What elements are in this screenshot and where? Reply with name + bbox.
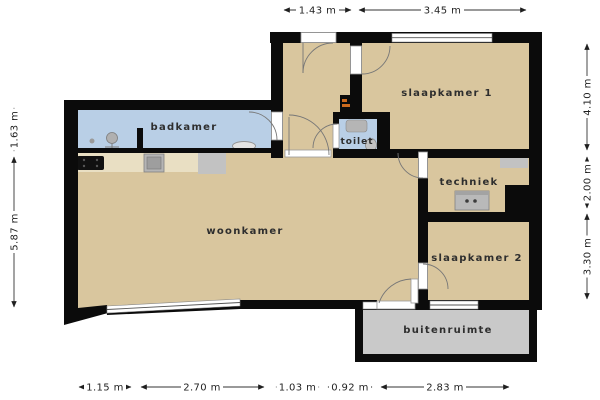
svg-text:2.70 m: 2.70 m (183, 383, 221, 394)
refrigerator-icon (198, 152, 226, 174)
wall-badkamer-top (64, 100, 271, 110)
room-label-buitenruimte: buitenruimte (403, 325, 492, 336)
window-slaapkamer2 (430, 301, 478, 309)
svg-text:3.45 m: 3.45 m (424, 6, 462, 17)
svg-text:1.43 m: 1.43 m (299, 6, 337, 17)
dim-right-1: 4.10 m (581, 44, 594, 150)
svg-text:2.83 m: 2.83 m (426, 383, 464, 394)
room-label-slaapkamer-1: slaapkamer 1 (401, 88, 493, 99)
dim-bottom-4: 0.92 m (328, 381, 372, 394)
svg-text:5.87 m: 5.87 m (10, 213, 21, 251)
window-slaapkamer1 (392, 34, 492, 43)
wall-slaapkamer1-bottom-a (333, 149, 418, 158)
floor-plan-page: badkamer slaapkamer 1 toilet techniek wo… (0, 0, 600, 400)
dim-bottom-5: 2.83 m (381, 381, 509, 394)
dim-right-2: 2.00 m (581, 157, 594, 208)
wall-shower-stub (137, 128, 143, 149)
dim-left-1: 1.63 m (8, 108, 21, 151)
svg-text:1.63 m: 1.63 m (10, 111, 21, 149)
dim-bottom-2: 2.70 m (141, 381, 264, 394)
svg-text:0.92 m: 0.92 m (331, 383, 369, 394)
window-buitenruimte-side (363, 302, 377, 309)
cooktop-icon (77, 156, 104, 170)
hand-basin-icon (346, 120, 367, 132)
drain-icon (90, 139, 95, 144)
dim-bottom-1: 1.15 m (79, 381, 131, 394)
wall-slaapkamer1-bottom-b (428, 149, 542, 158)
wall-shaft (505, 185, 530, 212)
washer-icon (455, 191, 489, 210)
svg-text:1.03 m: 1.03 m (279, 383, 317, 394)
room-label-woonkamer: woonkamer (206, 226, 283, 237)
dim-right-3: 3.30 m (581, 214, 594, 299)
svg-text:2.00 m: 2.00 m (583, 164, 594, 202)
room-label-slaapkamer-2: slaapkamer 2 (431, 253, 523, 264)
wall-right (529, 32, 542, 310)
accent-meter-mark-2 (342, 99, 347, 102)
room-label-toilet: toilet (340, 137, 373, 147)
wall-techniek-slaapkamer2 (428, 212, 542, 222)
room-label-techniek: techniek (440, 177, 499, 188)
dim-bottom-3: 1.03 m (276, 381, 319, 394)
svg-text:1.15 m: 1.15 m (86, 383, 124, 394)
dim-top-1: 1.43 m (284, 4, 351, 17)
dim-left-2: 5.87 m (8, 157, 21, 307)
svg-text:3.30 m: 3.30 m (583, 238, 594, 276)
dim-top-2: 3.45 m (359, 4, 526, 17)
accent-meter-mark (342, 104, 350, 107)
wall-badkamer-bottom (78, 148, 271, 153)
wall-hal-left (271, 43, 283, 158)
floor-plan-svg: badkamer slaapkamer 1 toilet techniek wo… (0, 0, 600, 400)
svg-text:4.10 m: 4.10 m (583, 78, 594, 116)
room-label-badkamer: badkamer (151, 122, 218, 133)
